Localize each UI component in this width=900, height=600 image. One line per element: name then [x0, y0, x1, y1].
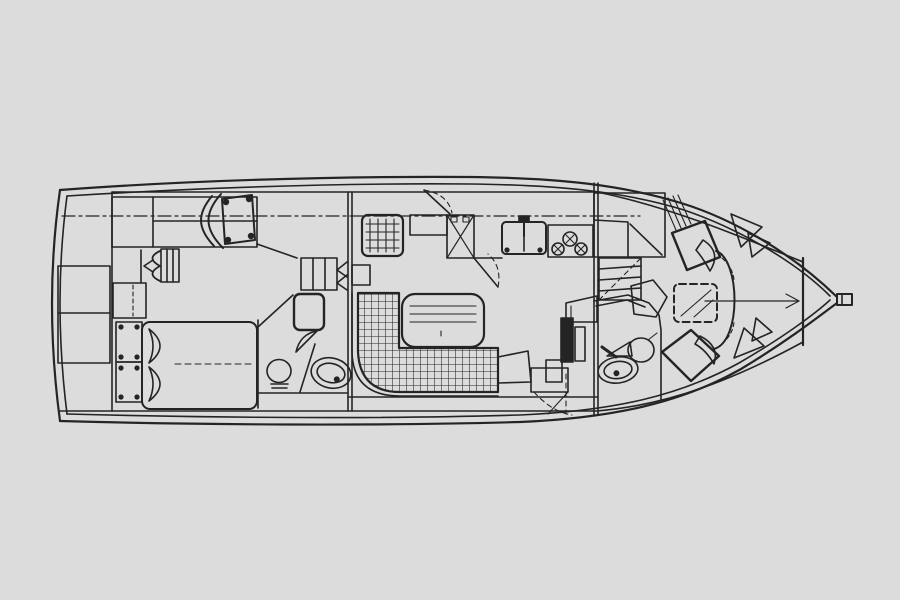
paper-background — [0, 0, 900, 600]
black-door-panel — [561, 318, 573, 362]
yacht-deck-plan — [0, 0, 900, 600]
deck-plan-svg — [0, 0, 900, 600]
